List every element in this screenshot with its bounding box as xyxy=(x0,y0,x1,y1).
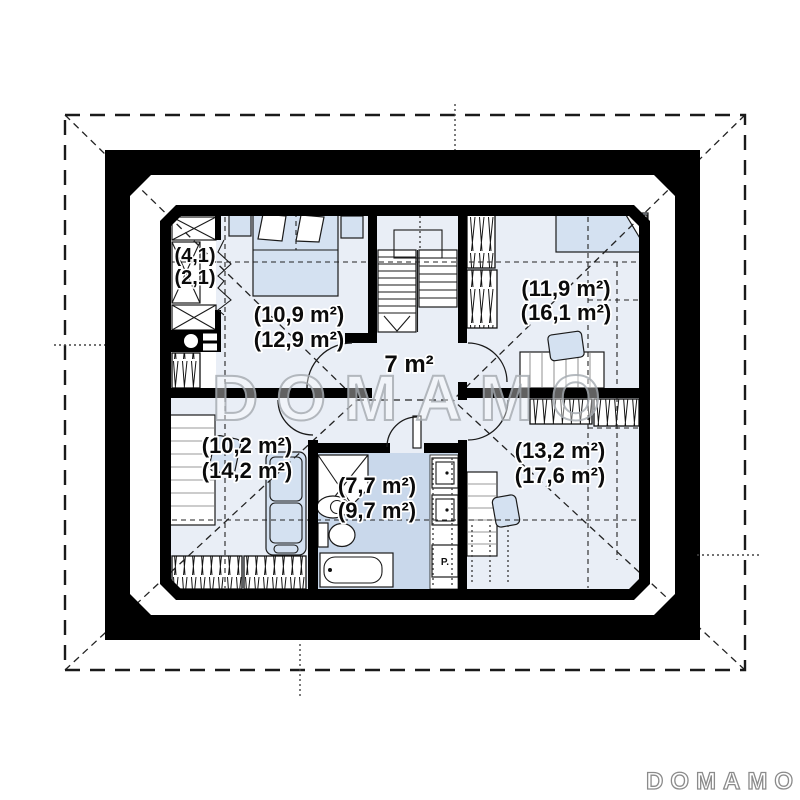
bottom-right-area-line1: (13,2 m²) xyxy=(515,438,605,463)
bottom-right-area-line2: (17,6 m²) xyxy=(515,463,605,488)
chair-icon xyxy=(492,494,521,528)
closet-area-line2: (2,1) xyxy=(174,267,215,289)
top-right-wardrobe xyxy=(467,212,497,328)
floor-plan: P. xyxy=(0,0,800,800)
pillow-icon xyxy=(258,214,286,241)
nightstand xyxy=(229,214,251,236)
closet-area-line1: (4,1) xyxy=(174,245,215,267)
kitchenette xyxy=(171,330,221,352)
pillow-icon xyxy=(296,215,324,242)
sink-icon xyxy=(184,334,198,348)
top-right-area-line1: (11,9 m²) xyxy=(521,276,610,301)
bottom-left-area-line1: (10,2 m²) xyxy=(202,433,292,458)
top-right-area-line2: (16,1 m²) xyxy=(521,300,611,325)
bottom-left-area-line2: (14,2 m²) xyxy=(202,458,292,483)
toilet xyxy=(318,523,355,547)
chair-icon xyxy=(547,331,584,361)
brand-logo: DOMAMO xyxy=(646,768,800,795)
watermark: DOMAMO xyxy=(212,362,619,434)
bathtub xyxy=(320,553,393,587)
bedroom-area-line2: (12,9 m²) xyxy=(254,327,344,352)
washing-machine-label: P. xyxy=(441,557,449,568)
washing-machine: P. xyxy=(432,545,458,577)
bathroom-area-line2: (9,7 m²) xyxy=(338,498,416,523)
nightstand xyxy=(341,216,363,238)
bottom-left-wardrobes xyxy=(172,556,306,589)
closet-hanger-wardrobe xyxy=(172,353,200,388)
bedroom-area-line1: (10,9 m²) xyxy=(254,302,344,327)
bathroom-area-line1: (7,7 m²) xyxy=(338,473,416,498)
